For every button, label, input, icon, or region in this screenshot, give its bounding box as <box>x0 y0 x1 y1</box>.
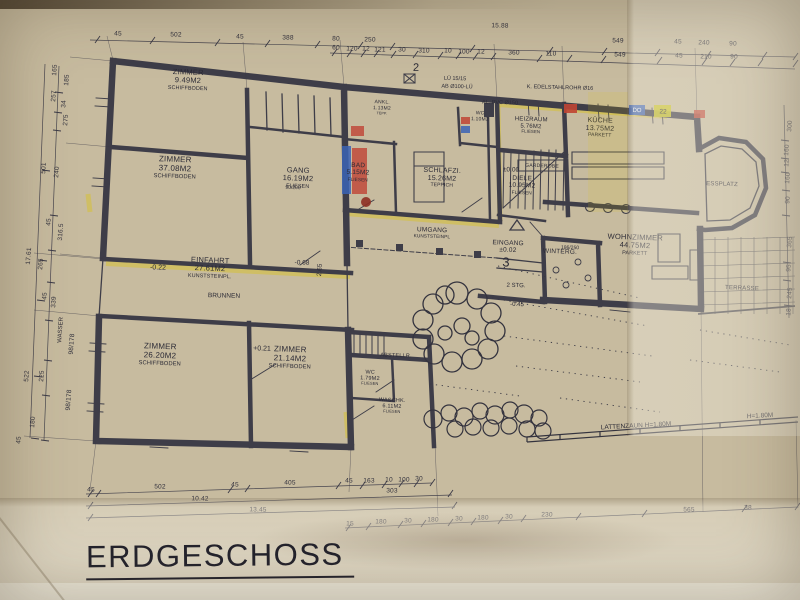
dimension-label: 180 <box>375 518 387 525</box>
dimension-label: 45 <box>231 481 239 488</box>
dimension-label: 18 <box>785 308 793 316</box>
annotation-label: -0.22 <box>150 264 166 271</box>
dimension-label: 30 <box>404 517 412 524</box>
dimension-label: 210 <box>700 53 712 60</box>
dimension-label: 100 <box>398 476 410 483</box>
room-label-terrasse: TERRASSE <box>725 285 759 293</box>
dimension-label: 45 <box>87 486 95 493</box>
room-name: GARDEROBE <box>525 164 559 171</box>
annotation-label: 186/250 <box>561 245 579 251</box>
dimension-label: 160 <box>783 144 791 156</box>
dimension-label: 265 <box>37 258 45 270</box>
room-floor: FLIESEN <box>508 189 535 195</box>
dimension-label: 17.61 <box>25 247 33 265</box>
room-floor: SCHIFFBODEN <box>138 360 181 368</box>
dimension-label: 95 <box>785 264 793 272</box>
dimension-label: 45 <box>114 30 122 37</box>
dimension-label: 34 <box>60 100 68 108</box>
dimension-label: 30 <box>455 515 463 522</box>
dimension-label: 160 <box>784 172 792 184</box>
dimension-label: 30 <box>398 46 406 53</box>
dimension-label: 300 <box>786 120 794 132</box>
room-label-diele: DIELE10.95M2FLIESEN <box>508 175 535 196</box>
room-floor: PARKETT <box>585 133 614 140</box>
dimension-label: 180 <box>427 516 439 523</box>
dimension-label: 240 <box>698 39 710 46</box>
dimension-label: 80 <box>332 35 340 42</box>
dimension-label: 30 <box>415 475 423 482</box>
dimension-label: 502 <box>154 483 166 490</box>
room-name: TERRASSE <box>725 285 759 293</box>
room-label-kche: KÜCHE13.75M2PARKETT <box>585 117 614 139</box>
dimension-label: 110 <box>545 50 556 57</box>
room-name: ABSTELLR. <box>380 352 412 359</box>
dimension-label: 303 <box>386 487 398 494</box>
dimension-label: 245 <box>786 287 794 299</box>
dimension-label: 100 <box>458 48 470 55</box>
annotation-label: -0.68 <box>294 259 309 266</box>
annotation-label: DO <box>632 108 641 114</box>
annotation-label: H=1.80M <box>747 412 774 420</box>
dimension-label: 549 <box>612 37 624 44</box>
room-floor: PARKETT <box>607 249 663 257</box>
room-label-heizraum: HEIZRAUM5.76M2FLIESEN <box>514 116 548 135</box>
dimension-label: 405 <box>284 479 296 486</box>
dimension-label: 45 <box>15 436 23 444</box>
dimension-label: 165 <box>51 64 59 76</box>
plan-title: ERDGESCHOSS <box>86 537 354 581</box>
plan-labels: ZIMMER9.49M2SCHIFFBODENZIMMER37.08M2SCHI… <box>0 0 800 600</box>
dimension-label: 240 <box>53 166 61 178</box>
dimension-label: 45 <box>41 292 49 300</box>
dimension-label: 30 <box>505 513 513 520</box>
dimension-label: 225 <box>38 370 46 382</box>
annotation-label: -0.45 <box>510 302 524 308</box>
dimension-label: 180 <box>29 416 37 428</box>
room-label-umgang: UMGANGKUNSTSTEINPL <box>414 226 451 240</box>
room-label-ankl: ANKL.1.13M2TEPP. <box>373 100 391 116</box>
dimension-label: 360 <box>508 49 520 56</box>
dimension-label: 90 <box>729 40 737 47</box>
room-floor: FLIESEN <box>514 130 547 136</box>
room-label-zimmer: ZIMMER21.14M2SCHIFFBODEN <box>268 345 311 371</box>
dimension-label: 12 <box>783 159 791 167</box>
dimension-label: 180 <box>477 514 489 521</box>
annotation-label: ±0.00 <box>503 166 519 173</box>
dimension-label: 339 <box>50 296 58 308</box>
annotation-label: 2 <box>413 62 419 74</box>
room-floor: SCHIFFBODEN <box>168 85 208 92</box>
dimension-label: 549 <box>614 51 626 58</box>
annotation-label: 90/200 <box>285 185 300 191</box>
room-label-waschk: WASCHK.6.11M2FLIESEN <box>378 397 405 415</box>
room-floor: TEPP. <box>373 111 391 116</box>
floorplan-photo: ZIMMER9.49M2SCHIFFBODENZIMMER37.08M2SCHI… <box>0 0 800 600</box>
annotation-label: K. EDELSTAHLROHR Ø16 <box>527 84 594 92</box>
dimension-label: 90 <box>730 53 738 60</box>
room-label-zimmer: ZIMMER37.08M2SCHIFFBODEN <box>153 155 196 181</box>
annotation-label: LÜ 15/15 <box>444 76 466 83</box>
dimension-label: 10.42 <box>191 495 208 502</box>
dimension-label: 185 <box>63 74 71 86</box>
dimension-label: 250 <box>364 36 376 43</box>
room-label-zimmer: ZIMMER26.20M2SCHIFFBODEN <box>138 342 181 368</box>
annotation-label: +0.21 <box>253 345 271 352</box>
dimension-label: 45 <box>45 218 53 226</box>
room-floor: KUNSTSTEINPL <box>414 233 451 240</box>
dimension-label: 98/178 <box>65 389 73 411</box>
room-floor: SCHIFFBODEN <box>153 173 196 181</box>
dimension-label: 565 <box>683 506 695 513</box>
dimension-label: 10 <box>385 476 393 483</box>
room-name: ESSPLATZ <box>706 181 738 189</box>
dimension-label: 12 <box>362 45 370 52</box>
room-floor: FLIESEN <box>360 382 380 387</box>
dimension-label: 90 <box>784 196 792 204</box>
room-label-garderobe: GARDEROBE <box>525 164 559 171</box>
dimension-label: 501 <box>40 162 48 174</box>
dimension-label: 310 <box>418 47 430 54</box>
dimension-label: 163 <box>363 477 375 484</box>
room-label-zimmer: ZIMMER9.49M2SCHIFFBODEN <box>168 68 209 92</box>
dimension-label: 502 <box>170 31 182 38</box>
room-floor: FLIESEN <box>346 176 369 182</box>
room-label-abstellr: ABSTELLR. <box>380 352 412 359</box>
annotation-label: 22 <box>659 108 666 115</box>
room-label-eingang: EINGANG±0.02 <box>492 239 524 255</box>
annotation-label: BRUNNEN <box>208 292 240 300</box>
dimension-label: 45 <box>674 38 682 45</box>
room-floor: TEPPICH <box>423 182 461 189</box>
dimension-label: 365 <box>786 236 794 248</box>
dimension-label: 38 <box>744 504 752 511</box>
room-floor: FLIESEN <box>378 409 405 414</box>
dimension-label: 121 <box>374 46 386 53</box>
annotation-label: 3 <box>502 254 510 269</box>
dimension-label: 12 <box>477 48 485 55</box>
annotation-label: WASSER <box>57 317 65 343</box>
dimension-label: 15 <box>346 520 354 527</box>
dimension-label: 98/178 <box>68 333 76 355</box>
dimension-label: 388 <box>282 34 294 41</box>
room-label-wc: WC1.10M2 <box>471 111 489 123</box>
dimension-label: 60 <box>332 44 340 51</box>
dimension-label: 45 <box>675 52 683 59</box>
room-label-einfahrt: EINFAHRT27.61M2KUNSTSTEINPL. <box>188 256 232 280</box>
room-area: 1.10M2 <box>471 117 489 123</box>
room-floor: SCHIFFBODEN <box>268 363 311 371</box>
room-floor: KUNSTSTEINPL. <box>188 273 232 281</box>
dimension-label: 45 <box>236 33 244 40</box>
annotation-label: LATTENZAUN H=1.80M <box>601 421 672 432</box>
annotation-label: 2.65 <box>316 263 324 276</box>
dimension-label: 13.45 <box>249 506 266 513</box>
room-label-schlafzi: SCHLAFZI.15.26M2TEPPICH <box>423 167 461 190</box>
annotation-label: AB Ø100-LÜ <box>441 84 472 91</box>
room-label-bad: BAD5.15M2FLIESEN <box>346 162 370 183</box>
dimension-label: 10 <box>444 47 452 54</box>
dimension-label: 15.88 <box>491 22 508 29</box>
dimension-label: 522 <box>23 370 31 382</box>
dimension-label: 120 <box>346 45 358 52</box>
annotation-label: AL. PVC Ø150 <box>482 100 518 107</box>
room-label-essplatz: ESSPLATZ <box>706 181 738 189</box>
dimension-label: 230 <box>541 511 553 518</box>
annotation-label: 2 STG. <box>506 283 525 289</box>
room-label-wohnzimmer: WOHNZIMMER44.75M2PARKETT <box>607 233 663 258</box>
dimension-label: 45 <box>345 477 353 484</box>
room-label-wc: WC1.79M2FLIESEN <box>360 369 380 386</box>
dimension-label: 316.5 <box>57 223 65 241</box>
dimension-label: 275 <box>62 114 70 126</box>
dimension-label: 257 <box>50 90 58 102</box>
